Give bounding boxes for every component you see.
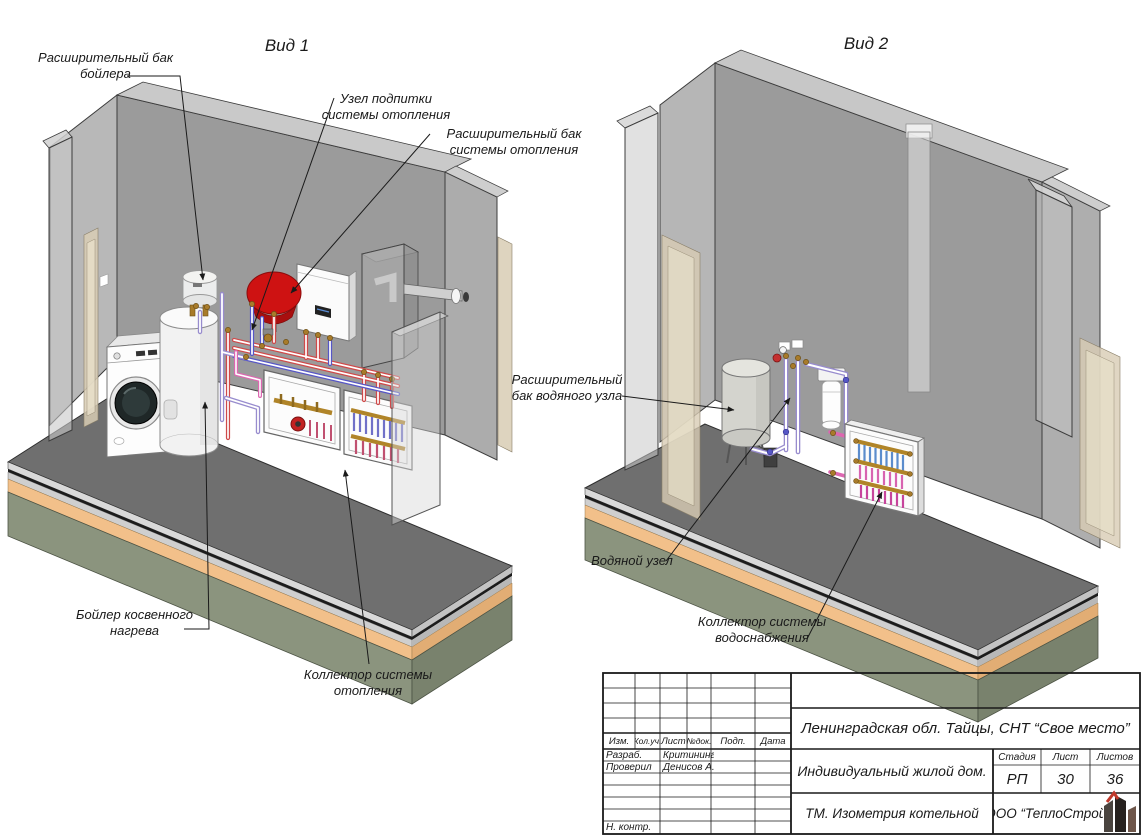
callout-boiler-expansion-tank: Расширительный бак бойлера <box>28 50 183 82</box>
callout-water-unit-expansion-tank: Расширительный бак водяного узла <box>486 372 648 404</box>
titleblock-header-ndok: №док. <box>687 733 711 749</box>
titleblock-header-izm: Изм. <box>603 733 635 749</box>
titleblock-sheet-value: 30 <box>1041 765 1090 793</box>
titleblock-stage-value: РП <box>993 765 1041 793</box>
indirect-boiler-cylinder <box>160 307 218 456</box>
drawing-sheet: Вид 1 Вид 2 Расширительный бак бойлера У… <box>0 0 1144 838</box>
pressure-gauge <box>773 354 781 362</box>
callout-heating-expansion-tank: Расширительный бак системы отопления <box>424 126 604 158</box>
wall-chimney-strip <box>906 124 932 392</box>
titleblock-header-koluch: Кол.уч. <box>635 733 660 749</box>
titleblock-sheets-label: Листов <box>1090 749 1140 765</box>
titleblock-header-list: Лист <box>660 733 687 749</box>
glass-partition <box>392 312 440 525</box>
water-unit-expansion-tank <box>722 359 770 465</box>
view2-illustration <box>585 50 1120 722</box>
titleblock-header-data: Дата <box>755 733 791 749</box>
titleblock-role-ncontr: Н. контр. <box>603 821 663 834</box>
titleblock-name-proveril: Денисов А. <box>660 761 714 773</box>
callout-indirect-boiler: Бойлер косвенного нагрева <box>52 607 217 639</box>
titleblock-project-name: Ленинградская обл. Тайцы, СНТ “Свое мест… <box>791 708 1140 749</box>
titleblock-name-razrab: Критинина <box>660 749 714 761</box>
view2-title: Вид 2 <box>816 34 916 54</box>
titleblock-company: ООО “ТеплоСтрой” <box>993 793 1103 834</box>
titleblock-role-razrab: Разраб. <box>603 749 663 761</box>
callout-heating-manifold: Коллектор системы отопления <box>283 667 453 699</box>
titleblock-doc-title: ТМ. Изометрия котельной <box>791 793 993 834</box>
teplostroy-logo-icon <box>1104 793 1136 832</box>
titleblock-role-proveril: Проверил <box>603 761 663 773</box>
makeup-unit-assembly <box>263 329 273 342</box>
titleblock-sheets-value: 36 <box>1090 765 1140 793</box>
view1-title: Вид 1 <box>237 36 337 56</box>
titleblock-stage-label: Стадия <box>993 749 1041 765</box>
titleblock-object-name: Индивидуальный жилой дом. <box>791 749 993 793</box>
callout-water-supply-manifold: Коллектор системы водоснабжения <box>678 614 846 646</box>
filter-housing <box>818 368 845 429</box>
callout-water-unit: Водяной узел <box>572 553 692 569</box>
callout-makeup-unit: Узел подпитки системы отопления <box>300 91 472 123</box>
corner-post-left <box>625 113 658 470</box>
titleblock-header-podp: Подп. <box>711 733 755 749</box>
titleblock-sheet-label: Лист <box>1041 749 1090 765</box>
